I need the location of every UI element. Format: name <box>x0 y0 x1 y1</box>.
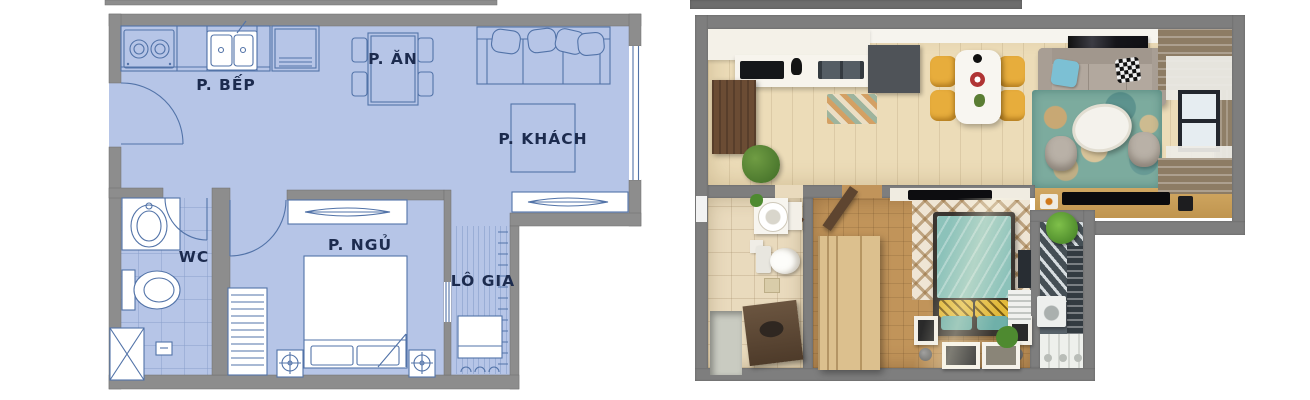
lamp-sphere <box>919 348 932 361</box>
bedside-frame <box>914 316 938 345</box>
wardrobe-slats <box>818 236 844 370</box>
dining-chair-3d <box>998 56 1025 87</box>
vanity-sink <box>759 320 785 339</box>
nightstand-right <box>409 350 435 377</box>
rooster-figurine <box>791 58 802 75</box>
curtain-bottom <box>1158 158 1232 194</box>
bath-drain <box>764 278 780 293</box>
bedroom-cabinet <box>288 200 407 224</box>
tv-bedroom <box>908 190 992 200</box>
wall-right-upper <box>629 14 641 46</box>
render-wall-bath-bed <box>803 198 813 375</box>
label-loggia: LÔ GIA <box>451 271 515 290</box>
pillow-blue <box>1050 58 1080 88</box>
wall-living-bottom <box>510 213 641 226</box>
deck-dot <box>1044 354 1052 362</box>
label-kitchen: P. BẾP <box>196 73 256 94</box>
nightstand-left <box>277 350 303 377</box>
render-wall-bottom <box>695 368 1095 381</box>
dining-chair-3d <box>930 90 957 121</box>
bed-3d <box>933 212 1015 336</box>
window-pane <box>1182 94 1216 119</box>
toilet-bowl-3d <box>770 248 800 274</box>
deck-dot <box>1074 354 1082 362</box>
pendant-lamp <box>973 54 982 63</box>
armchair <box>1128 132 1160 167</box>
wall-wc-bedroom <box>212 188 230 375</box>
bed-quilt <box>937 216 1011 298</box>
bathroom-doorway <box>775 185 803 198</box>
screenshot-root: P. BẾP P. ĂN P. KHÁCH WC P. NGỦ LÔ GIA <box>0 0 1310 400</box>
wall-notch <box>696 196 707 222</box>
floor-plan-2d: P. BẾP P. ĂN P. KHÁCH WC P. NGỦ LÔ GIA <box>0 0 660 400</box>
window-pane <box>1182 123 1216 148</box>
cooktop <box>740 61 784 79</box>
balcony-plant <box>1046 212 1078 244</box>
label-wc: WC <box>179 248 209 266</box>
render-wall-right <box>1232 15 1245 235</box>
bath-sink-basin <box>758 202 788 232</box>
bedroom-window <box>1018 250 1031 288</box>
toilet-tank-3d <box>756 246 771 273</box>
floor-art-frame <box>942 342 980 369</box>
dining-table <box>368 33 418 105</box>
bedroom-plant <box>996 326 1018 348</box>
bath-plant <box>750 194 763 207</box>
wall-left-upper <box>109 14 121 83</box>
armchair <box>1045 136 1077 171</box>
tv-console-2d <box>512 192 628 212</box>
floor-plan-3d-render <box>690 0 1310 400</box>
vanity <box>743 300 804 366</box>
balcony-white-deck <box>1040 334 1083 368</box>
render-wall-top <box>695 15 1245 29</box>
sofa-cushion <box>527 27 558 53</box>
frame-art <box>986 346 1016 365</box>
window-right <box>629 46 641 180</box>
wall-wc-top <box>109 188 163 198</box>
sink-3d <box>818 61 864 79</box>
corner-unit <box>868 45 920 93</box>
sofa-cushion <box>490 28 521 55</box>
plant-kitchen <box>742 145 780 183</box>
label-bedroom: P. NGỦ <box>328 233 392 254</box>
top-edge-strip <box>105 0 497 5</box>
speaker <box>1178 196 1193 211</box>
bath-niche <box>710 311 742 375</box>
shaft <box>110 328 144 380</box>
dining-chair-3d <box>998 90 1025 121</box>
toilet-tank <box>122 270 135 310</box>
sofa-cushion <box>577 32 605 56</box>
radiator-slats <box>1008 290 1031 324</box>
wall-bedroom-north <box>287 190 444 200</box>
window-3d <box>1178 90 1220 152</box>
wall-loggia-right <box>510 226 519 389</box>
table-decor-greens <box>974 94 985 107</box>
deck-dot <box>1059 354 1067 362</box>
render-top-strip <box>690 0 1022 9</box>
dining-chair-3d <box>930 56 957 87</box>
toilet-bowl <box>134 271 180 309</box>
bed-2d <box>304 256 407 368</box>
wardrobe-seam <box>860 236 862 370</box>
wardrobe <box>228 288 267 375</box>
pillow-checkered <box>1114 56 1141 83</box>
table-decor-cake <box>970 72 985 87</box>
media-device <box>1040 194 1058 209</box>
label-dining: P. ĂN <box>368 49 418 68</box>
tv-living <box>1062 192 1170 205</box>
kitchen-rug <box>827 94 877 124</box>
wardrobe-3d <box>818 236 880 370</box>
pillow-teal <box>941 316 972 330</box>
louver-column <box>1067 246 1083 342</box>
wall-top <box>109 14 641 26</box>
label-living: P. KHÁCH <box>498 129 587 148</box>
render-wall-bottom-right <box>1095 221 1245 235</box>
washing-machine-3d <box>1037 296 1066 327</box>
render-balcony-right-wall <box>1083 210 1095 381</box>
frame-art <box>946 346 976 365</box>
frame-art <box>918 320 934 341</box>
wall-bottom <box>109 375 519 389</box>
entrance-door-3d <box>712 80 756 154</box>
